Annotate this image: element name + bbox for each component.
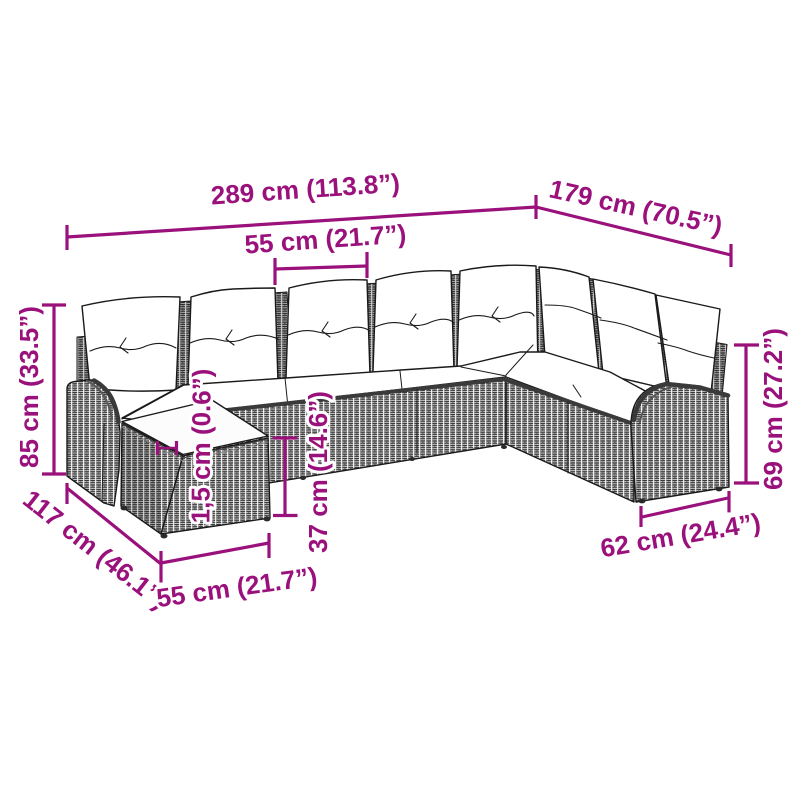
svg-text:1,5 cm (0.6”): 1,5 cm (0.6”) (185, 368, 216, 523)
svg-text:85 cm (33.5”): 85 cm (33.5”) (14, 306, 44, 468)
svg-text:37 cm (14.6”): 37 cm (14.6”) (303, 391, 333, 553)
svg-text:69 cm (27.2”): 69 cm (27.2”) (758, 328, 788, 490)
